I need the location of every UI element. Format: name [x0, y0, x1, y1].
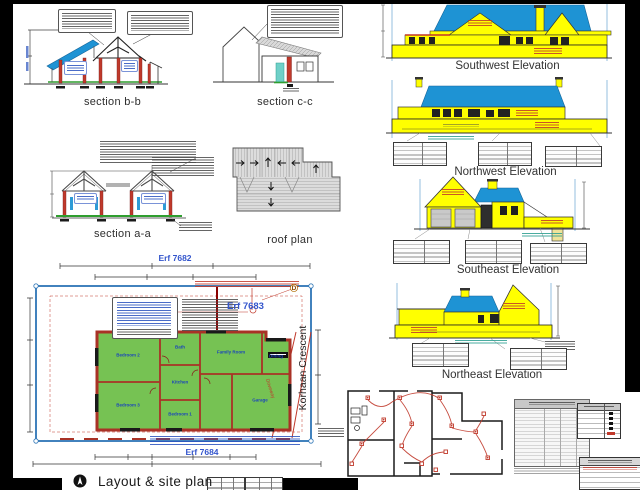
ne-spec-table-1: [412, 343, 469, 367]
section-bb-drawing: [24, 30, 168, 89]
section-aa-title: section a-a: [70, 228, 175, 240]
nw-wall-note: [516, 110, 538, 116]
nw-base-note: [535, 122, 559, 128]
title-block-table: [579, 457, 640, 490]
room-label-bedroom3: Bedroom 3: [116, 403, 140, 408]
corner-marker-d: D: [290, 284, 298, 292]
room-label-family-room: Family Room: [217, 350, 245, 355]
erf-7682-label: Erf 7682: [140, 253, 210, 263]
boundary-wall-note-bottom: [150, 436, 300, 445]
section-cc-note: [267, 5, 343, 38]
room-label-bathroom: Bath: [175, 345, 185, 350]
nw-spec-table-2: [478, 142, 532, 166]
section-bb-note-left: [58, 9, 116, 33]
nw-spec-table-1: [393, 142, 447, 166]
layout-site-plan-title: Layout & site plan: [98, 474, 243, 489]
se-spec-table-2: [465, 240, 522, 264]
ne-spec-table-2: [510, 348, 567, 370]
site-notes-box: [112, 297, 178, 339]
se-elevation-drawing: [414, 177, 590, 242]
room-label-bedroom1: Bedroom 1: [168, 412, 192, 417]
section-aa-room-chip-1: [74, 193, 97, 204]
electrical-plan-drawing: [348, 390, 504, 477]
ne-base-note: [411, 327, 437, 333]
section-bb-room-chip-2: [121, 60, 138, 72]
section-aa-room-chip-2: [141, 193, 166, 204]
sw-gable-note: [468, 20, 492, 26]
frame-bottom-left: [0, 478, 62, 490]
ne-elevation-title: Northeast Elevation: [412, 369, 572, 381]
room-label-dining: Dining: [269, 354, 283, 359]
nw-elevation-title: Northwest Elevation: [428, 166, 583, 178]
layout-spec-table-2: [245, 477, 283, 490]
culvert-note: [318, 428, 344, 437]
erf-7683-label: Erf 7683: [218, 301, 273, 312]
frame-left: [0, 0, 13, 490]
se-spec-table-3: [530, 243, 587, 264]
se-spec-table-1: [393, 240, 450, 264]
room-label-kitchen: Kitchen: [172, 380, 189, 385]
ne-gable-note: [503, 303, 525, 309]
section-bb-room-chip-1: [64, 61, 87, 75]
street-name-label: Korhaan Crescent: [297, 318, 309, 418]
se-elevation-title: Southeast Elevation: [428, 264, 588, 276]
section-bb-note-right: [127, 11, 193, 35]
section-aa-note-b: [152, 157, 214, 176]
drawing-sheet: section b-b section c-c section a-a roof…: [0, 0, 640, 490]
sw-elevation-drawing: [381, 3, 612, 61]
roof-plan-title: roof plan: [245, 234, 335, 246]
section-aa-note-c: [179, 222, 212, 231]
nw-spec-table-3: [545, 146, 602, 167]
section-cc-footing-note: [283, 88, 299, 93]
roof-plan-drawing: [233, 148, 340, 211]
symbol-legend-table: [577, 403, 621, 439]
boundary-wall-note-top: [195, 281, 299, 288]
erf-7684-label: Erf 7684: [172, 447, 232, 457]
section-cc-title: section c-c: [235, 96, 335, 108]
electrical-schedule-notes: [514, 468, 580, 476]
section-bb-title: section b-b: [60, 96, 165, 108]
frame-top: [0, 0, 640, 4]
se-ground-note: [522, 233, 562, 237]
se-ext-note: [541, 220, 563, 225]
frame-bottom-mid: [283, 478, 358, 490]
sw-base-note: [534, 48, 562, 55]
room-label-garage: Garage: [252, 398, 268, 403]
nw-dim-note: [443, 124, 479, 127]
nw-elevation-drawing: [386, 77, 612, 146]
se-gable-note: [442, 189, 464, 195]
frame-right: [625, 0, 640, 392]
sw-elevation-title: Southwest Elevation: [430, 60, 585, 72]
room-label-bedroom2: Bedroom 2: [116, 353, 140, 358]
nw-ground-note: [428, 136, 474, 140]
